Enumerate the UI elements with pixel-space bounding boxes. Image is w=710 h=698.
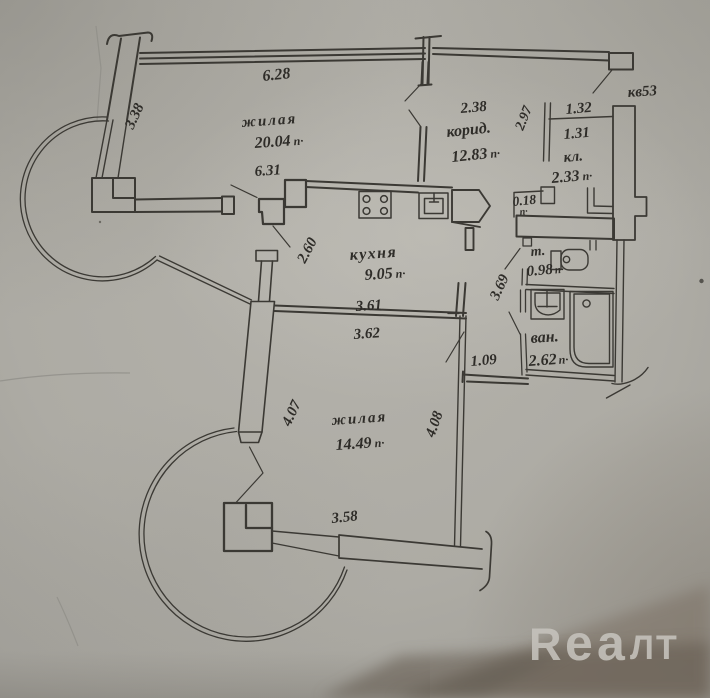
svg-text:1.31: 1.31 (563, 125, 591, 143)
svg-text:2.38: 2.38 (459, 99, 488, 117)
svg-text:Л: Л (630, 629, 654, 667)
svg-text:кухня: кухня (349, 244, 398, 264)
svg-text:т.: т. (530, 244, 546, 260)
svg-text:a: a (597, 615, 626, 671)
svg-text:e: e (565, 615, 593, 671)
svg-text:6.31: 6.31 (254, 162, 281, 180)
svg-text:6.28: 6.28 (262, 65, 292, 85)
svg-text:кл.: кл. (563, 148, 584, 166)
svg-text:1.32: 1.32 (565, 100, 593, 118)
svg-text:кв53: кв53 (627, 83, 658, 101)
svg-text:R: R (529, 619, 562, 670)
svg-text:Т: Т (656, 629, 677, 667)
